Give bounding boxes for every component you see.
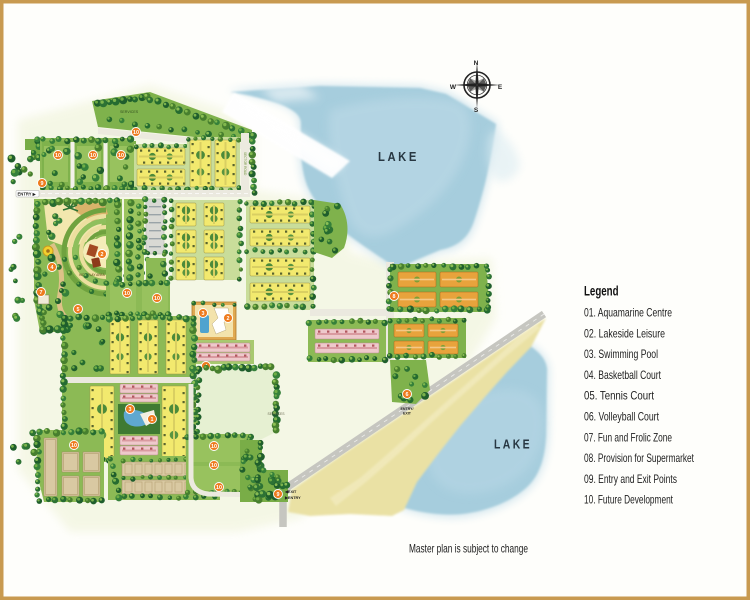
svg-text:S: S bbox=[474, 107, 479, 114]
svg-text:3: 3 bbox=[129, 407, 132, 413]
svg-text:Master plan is subject to chan: Master plan is subject to change bbox=[409, 542, 528, 556]
svg-text:SERVICES: SERVICES bbox=[120, 110, 139, 114]
svg-text:01. Aquamarine Centre: 01. Aquamarine Centre bbox=[584, 306, 672, 320]
svg-text:6: 6 bbox=[406, 392, 409, 398]
svg-text:10: 10 bbox=[211, 444, 217, 450]
svg-text:KIDS PLAY AREA: KIDS PLAY AREA bbox=[79, 273, 105, 277]
svg-text:2: 2 bbox=[101, 252, 104, 258]
svg-text:4: 4 bbox=[51, 265, 54, 271]
svg-text:◀EXIT: ◀EXIT bbox=[284, 490, 297, 494]
svg-text:LAKE: LAKE bbox=[494, 437, 532, 452]
svg-text:09. Entry and Exit Points: 09. Entry and Exit Points bbox=[584, 472, 677, 486]
svg-text:1: 1 bbox=[151, 417, 154, 423]
svg-text:9: 9 bbox=[277, 492, 280, 498]
svg-text:SECTOR ROAD: SECTOR ROAD bbox=[243, 152, 247, 176]
svg-text:W: W bbox=[450, 84, 457, 91]
svg-text:LAKE: LAKE bbox=[378, 149, 419, 164]
svg-text:▶ENTRY: ▶ENTRY bbox=[284, 496, 301, 500]
svg-text:06. Volleyball Court: 06. Volleyball Court bbox=[584, 410, 659, 424]
svg-text:04. Basketball Court: 04. Basketball Court bbox=[584, 368, 661, 382]
svg-text:2: 2 bbox=[227, 316, 230, 322]
svg-text:ENTRY ▶: ENTRY ▶ bbox=[18, 192, 37, 197]
svg-text:10: 10 bbox=[118, 153, 124, 159]
svg-text:EXIT: EXIT bbox=[403, 412, 412, 416]
svg-text:08. Provision for Supermarket: 08. Provision for Supermarket bbox=[584, 451, 694, 465]
svg-text:10: 10 bbox=[71, 443, 77, 449]
svg-text:10: 10 bbox=[216, 485, 222, 491]
svg-text:Legend: Legend bbox=[584, 283, 619, 299]
svg-text:9: 9 bbox=[41, 181, 44, 187]
svg-text:03. Swimming Pool: 03. Swimming Pool bbox=[584, 347, 658, 361]
svg-text:10: 10 bbox=[90, 153, 96, 159]
svg-text:7: 7 bbox=[40, 290, 43, 296]
svg-text:10: 10 bbox=[133, 130, 139, 136]
svg-text:10: 10 bbox=[154, 296, 160, 302]
svg-text:N: N bbox=[474, 60, 479, 67]
svg-text:5: 5 bbox=[77, 307, 80, 313]
svg-text:SERVICES: SERVICES bbox=[267, 412, 285, 416]
svg-text:10. Future Development: 10. Future Development bbox=[584, 493, 673, 507]
svg-text:07. Fun and Frolic Zone: 07. Fun and Frolic Zone bbox=[584, 430, 672, 444]
svg-text:10: 10 bbox=[55, 153, 61, 159]
svg-text:8: 8 bbox=[393, 294, 396, 300]
svg-text:10: 10 bbox=[211, 463, 217, 469]
svg-text:10: 10 bbox=[124, 291, 130, 297]
svg-text:3: 3 bbox=[202, 311, 205, 317]
svg-text:ENTRY/: ENTRY/ bbox=[400, 407, 413, 411]
svg-text:02. Lakeside Leisure: 02. Lakeside Leisure bbox=[584, 326, 665, 340]
svg-text:E: E bbox=[498, 84, 503, 91]
svg-text:05. Tennis Court: 05. Tennis Court bbox=[584, 389, 655, 403]
